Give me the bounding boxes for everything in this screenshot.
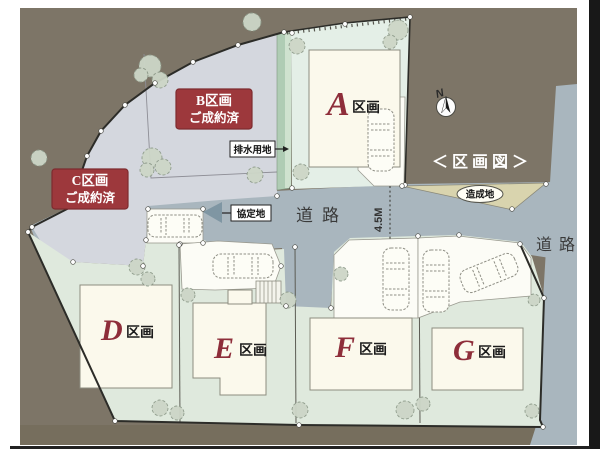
- plot-e-letter: E: [213, 332, 234, 365]
- plot-f-letter: F: [334, 331, 355, 364]
- drainage-strip-inner: [285, 34, 291, 188]
- plot-a-letter: A: [325, 86, 350, 123]
- plot-c-name: C区画: [72, 173, 109, 188]
- car-icon: [213, 254, 273, 278]
- tree-icon: [247, 167, 263, 183]
- road-right-label: 道路: [536, 236, 582, 254]
- plot-f-suffix: 区画: [359, 342, 387, 358]
- map-title: ＜区画図＞: [432, 153, 532, 171]
- tree-icon: [31, 150, 47, 166]
- tree-icon: [383, 35, 397, 49]
- tree-icon: [334, 267, 348, 281]
- tree-icon: [140, 163, 154, 177]
- plot-b-status: ご成約済: [189, 110, 240, 125]
- tree-icon: [134, 68, 148, 82]
- car-icon: [423, 250, 449, 312]
- ground-bottom-strip: [20, 425, 577, 445]
- road-center-label: 道路: [296, 206, 348, 225]
- tree-icon: [293, 164, 309, 180]
- tree-icon: [416, 397, 430, 411]
- tree-icon: [152, 72, 168, 88]
- graded-land-label: 造成地: [466, 189, 495, 201]
- plot-b-name: B区画: [196, 93, 232, 108]
- plot-map-screenshot: 4.5M B区画 ご成約済 C区画 ご成約済 A D E F G 区画 区画 区…: [0, 0, 600, 449]
- plot-c-sold-badge: C区画 ご成約済: [52, 169, 128, 209]
- tree-icon: [155, 159, 171, 175]
- plot-a-suffix: 区画: [352, 100, 380, 116]
- car-icon: [148, 215, 202, 237]
- plot-g-suffix: 区画: [478, 345, 506, 361]
- agreement-label: 協定地: [237, 208, 266, 220]
- tree-icon: [525, 404, 539, 418]
- stairs-icon: [256, 281, 281, 303]
- plot-e-porch: [228, 290, 252, 304]
- road-width-label: 4.5M: [373, 208, 385, 232]
- drainage-label: 排水用地: [233, 144, 272, 156]
- tree-icon: [292, 402, 308, 418]
- tree-icon: [396, 401, 414, 419]
- tree-icon: [243, 13, 261, 31]
- tree-icon: [170, 406, 184, 420]
- plot-g-letter: G: [453, 334, 475, 367]
- plot-d-suffix: 区画: [126, 325, 154, 341]
- plot-map-canvas: 4.5M B区画 ご成約済 C区画 ご成約済 A D E F G 区画 区画 区…: [0, 0, 600, 449]
- graded-land-callout: 造成地: [457, 186, 503, 203]
- tree-icon: [289, 38, 305, 54]
- plot-b-sold-badge: B区画 ご成約済: [176, 89, 252, 129]
- tree-icon: [528, 294, 540, 306]
- tree-icon: [181, 288, 195, 302]
- plot-d-letter: D: [100, 314, 123, 347]
- car-icon: [368, 109, 394, 171]
- car-icon: [383, 248, 409, 310]
- tree-icon: [141, 272, 155, 286]
- photo-edge-right: [589, 0, 600, 449]
- plot-c-status: ご成約済: [65, 190, 116, 205]
- plot-e-suffix: 区画: [239, 343, 267, 359]
- tree-icon: [152, 400, 168, 416]
